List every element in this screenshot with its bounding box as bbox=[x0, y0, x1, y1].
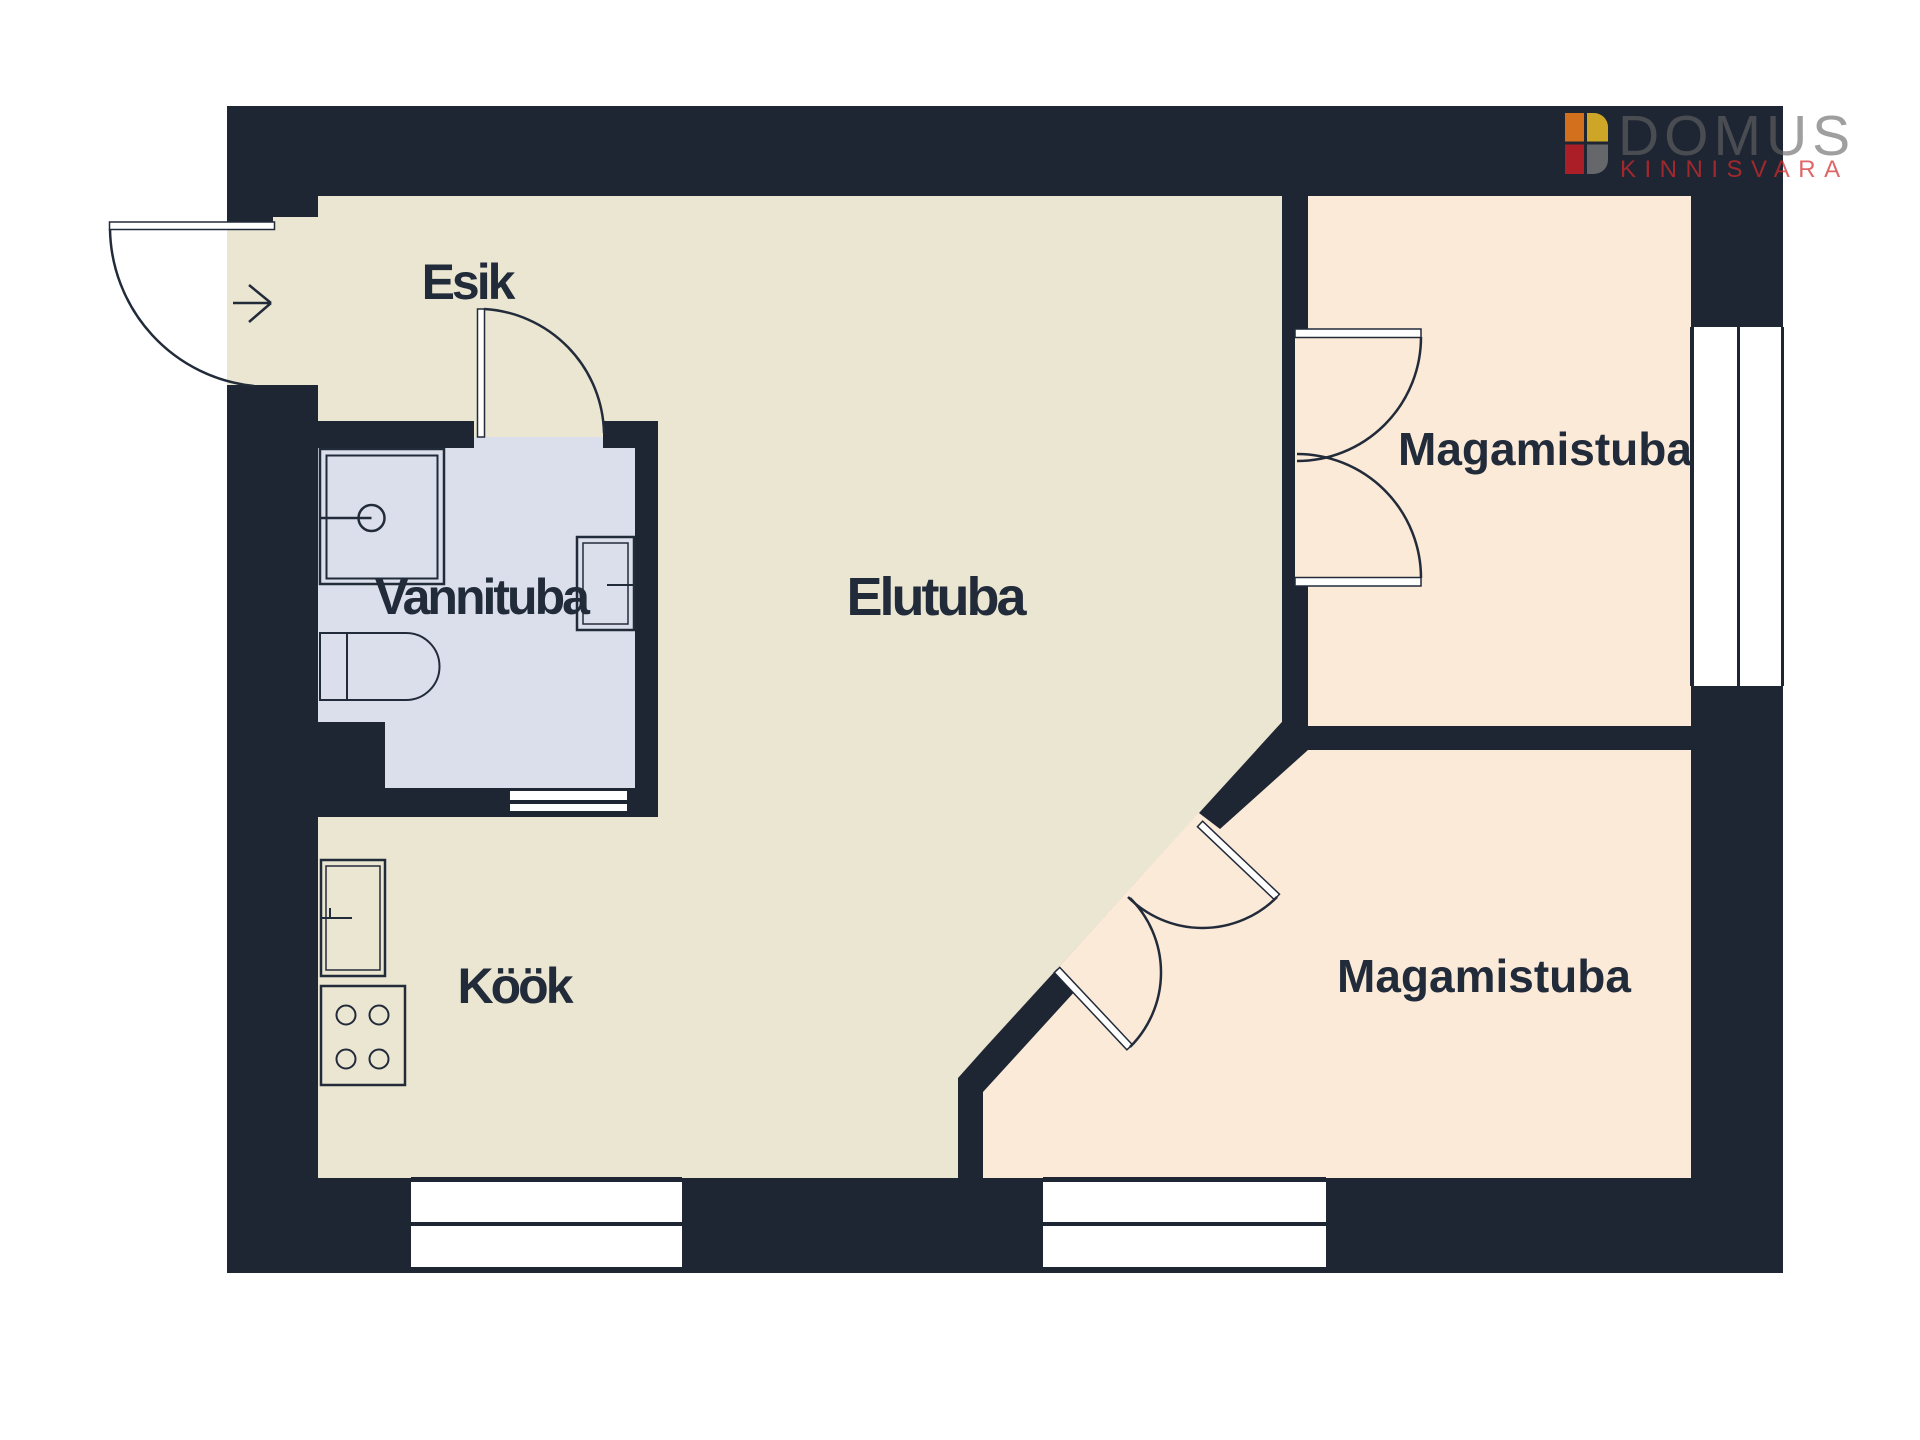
svg-text:Magamistuba: Magamistuba bbox=[1398, 423, 1692, 475]
svg-text:Magamistuba: Magamistuba bbox=[1337, 950, 1631, 1002]
svg-text:Köök: Köök bbox=[458, 958, 574, 1014]
svg-text:Esik: Esik bbox=[422, 254, 516, 310]
svg-text:KINNISVARA: KINNISVARA bbox=[1620, 156, 1849, 183]
svg-text:Vannituba: Vannituba bbox=[375, 569, 591, 625]
svg-text:Elutuba: Elutuba bbox=[847, 567, 1028, 627]
